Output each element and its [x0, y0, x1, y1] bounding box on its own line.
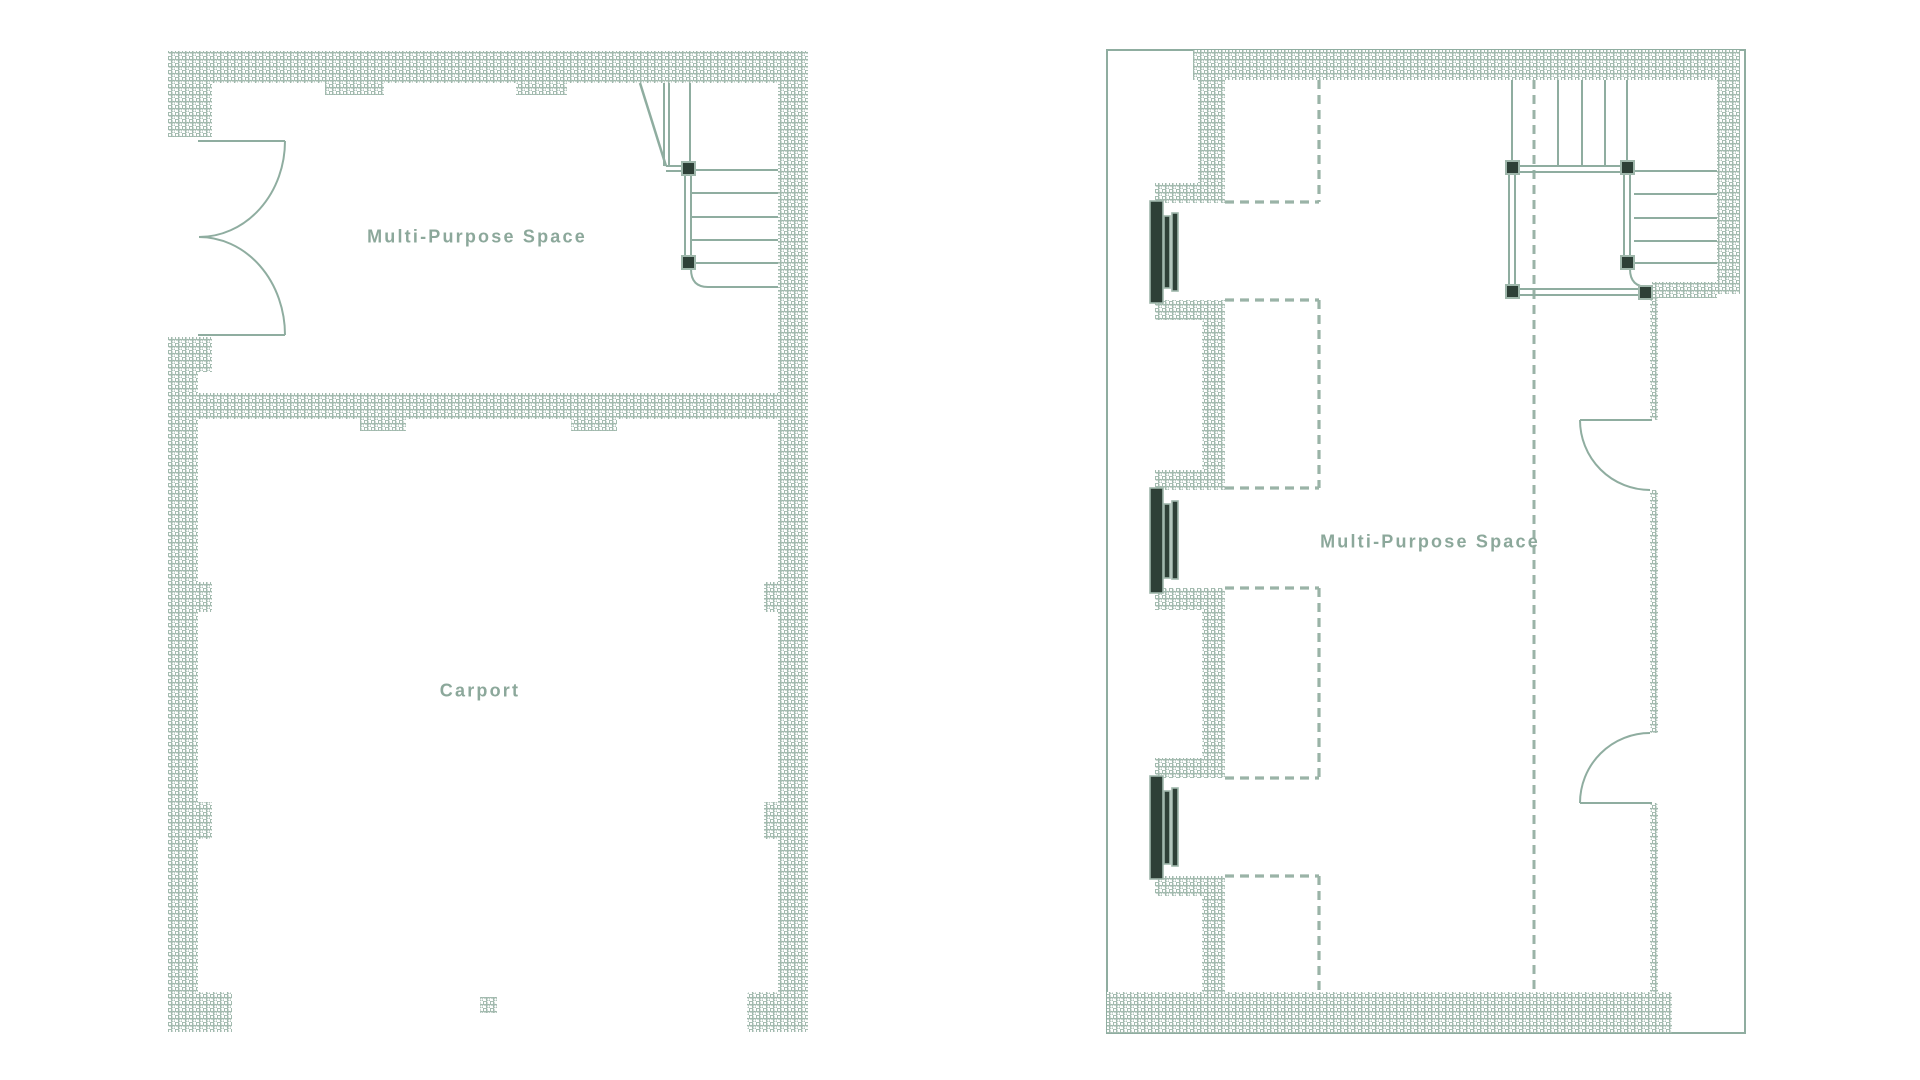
window-pier [1155, 758, 1225, 778]
right-wall-upper [1717, 50, 1740, 294]
left-wall-upper [168, 51, 212, 137]
window-pier [1155, 183, 1225, 203]
left-wall-lower [168, 372, 198, 992]
right-plan-stair [1506, 80, 1717, 299]
dashed-bay-outline [1225, 588, 1319, 778]
right-wall [778, 51, 808, 1032]
door-swing-arc [199, 141, 285, 237]
right-partition-wall [1650, 803, 1658, 992]
stair-curved-rail [691, 269, 778, 287]
window-pier [1155, 470, 1225, 490]
floor-plan-drawing [0, 0, 1920, 1080]
stair-diagonal-stringer [640, 83, 666, 166]
bottom-left-pier [168, 992, 232, 1032]
left-plan [168, 51, 808, 1032]
window-sash [1164, 791, 1170, 864]
window-frame [1150, 776, 1163, 879]
window-sash [1164, 504, 1170, 578]
left-plan-walls [168, 51, 808, 1032]
right-partition-wall [1650, 490, 1658, 733]
top-wall-notch [325, 83, 384, 95]
carport-entry-pillar [480, 997, 497, 1013]
newel-post [1639, 286, 1652, 299]
door-swing-arc [199, 237, 285, 335]
door-swing-arc [1580, 733, 1650, 803]
top-wall [1193, 50, 1740, 80]
left-plan-stair [640, 83, 778, 287]
room-label-multi-purpose-space-ground: Multi-Purpose Space [367, 227, 587, 248]
left-wall-pilaster [198, 582, 212, 612]
left-wall-pilaster [198, 802, 212, 839]
right-wall-pilaster [764, 582, 778, 612]
stair-side-wall [1652, 282, 1717, 298]
window-sash [1172, 501, 1178, 579]
window-sash [1172, 788, 1178, 866]
window-pier [1155, 876, 1225, 896]
window-sash [1164, 216, 1170, 288]
dashed-bay-outline [1225, 876, 1319, 990]
left-wall-column [1202, 896, 1225, 992]
right-plan-doors [1580, 420, 1652, 803]
window-frame [1150, 488, 1163, 593]
newel-post [682, 162, 695, 175]
top-wall [168, 51, 808, 83]
window-pier [1155, 588, 1225, 610]
stair-curved-rail [1630, 269, 1648, 287]
divider-wall [198, 393, 778, 419]
newel-post [1621, 256, 1634, 269]
right-partition-wall [1650, 298, 1658, 420]
left-wall-column [1198, 50, 1225, 183]
newel-post [682, 256, 695, 269]
left-wall-column [1202, 320, 1225, 470]
window-unit [1150, 488, 1178, 593]
window-unit [1150, 776, 1178, 879]
newel-post [1506, 161, 1519, 174]
door-swing-arc [1580, 420, 1650, 490]
bottom-right-pier [747, 992, 808, 1032]
dashed-bay-outline [1225, 80, 1319, 202]
dashed-bay-outline [1225, 300, 1319, 488]
newel-post [1621, 161, 1634, 174]
swing-door [1580, 733, 1652, 803]
room-label-multi-purpose-space-upper: Multi-Purpose Space [1320, 532, 1540, 553]
room-label-carport: Carport [440, 681, 520, 702]
top-wall-notch [516, 83, 567, 95]
window-frame [1150, 201, 1163, 303]
bottom-wall [1107, 992, 1672, 1033]
right-wall-pilaster [764, 802, 778, 839]
divider-wall-notch [571, 419, 617, 431]
newel-post [1506, 285, 1519, 298]
divider-wall-notch [360, 419, 406, 431]
window-unit [1150, 201, 1178, 303]
left-wall-mid [168, 337, 212, 372]
floor-plan-canvas: Multi-Purpose Space Carport Multi-Purpos… [0, 0, 1920, 1080]
swing-door [1580, 420, 1652, 490]
window-pier [1155, 300, 1225, 320]
left-wall-column [1202, 610, 1225, 758]
double-entry-door [198, 141, 285, 335]
window-sash [1172, 213, 1178, 291]
